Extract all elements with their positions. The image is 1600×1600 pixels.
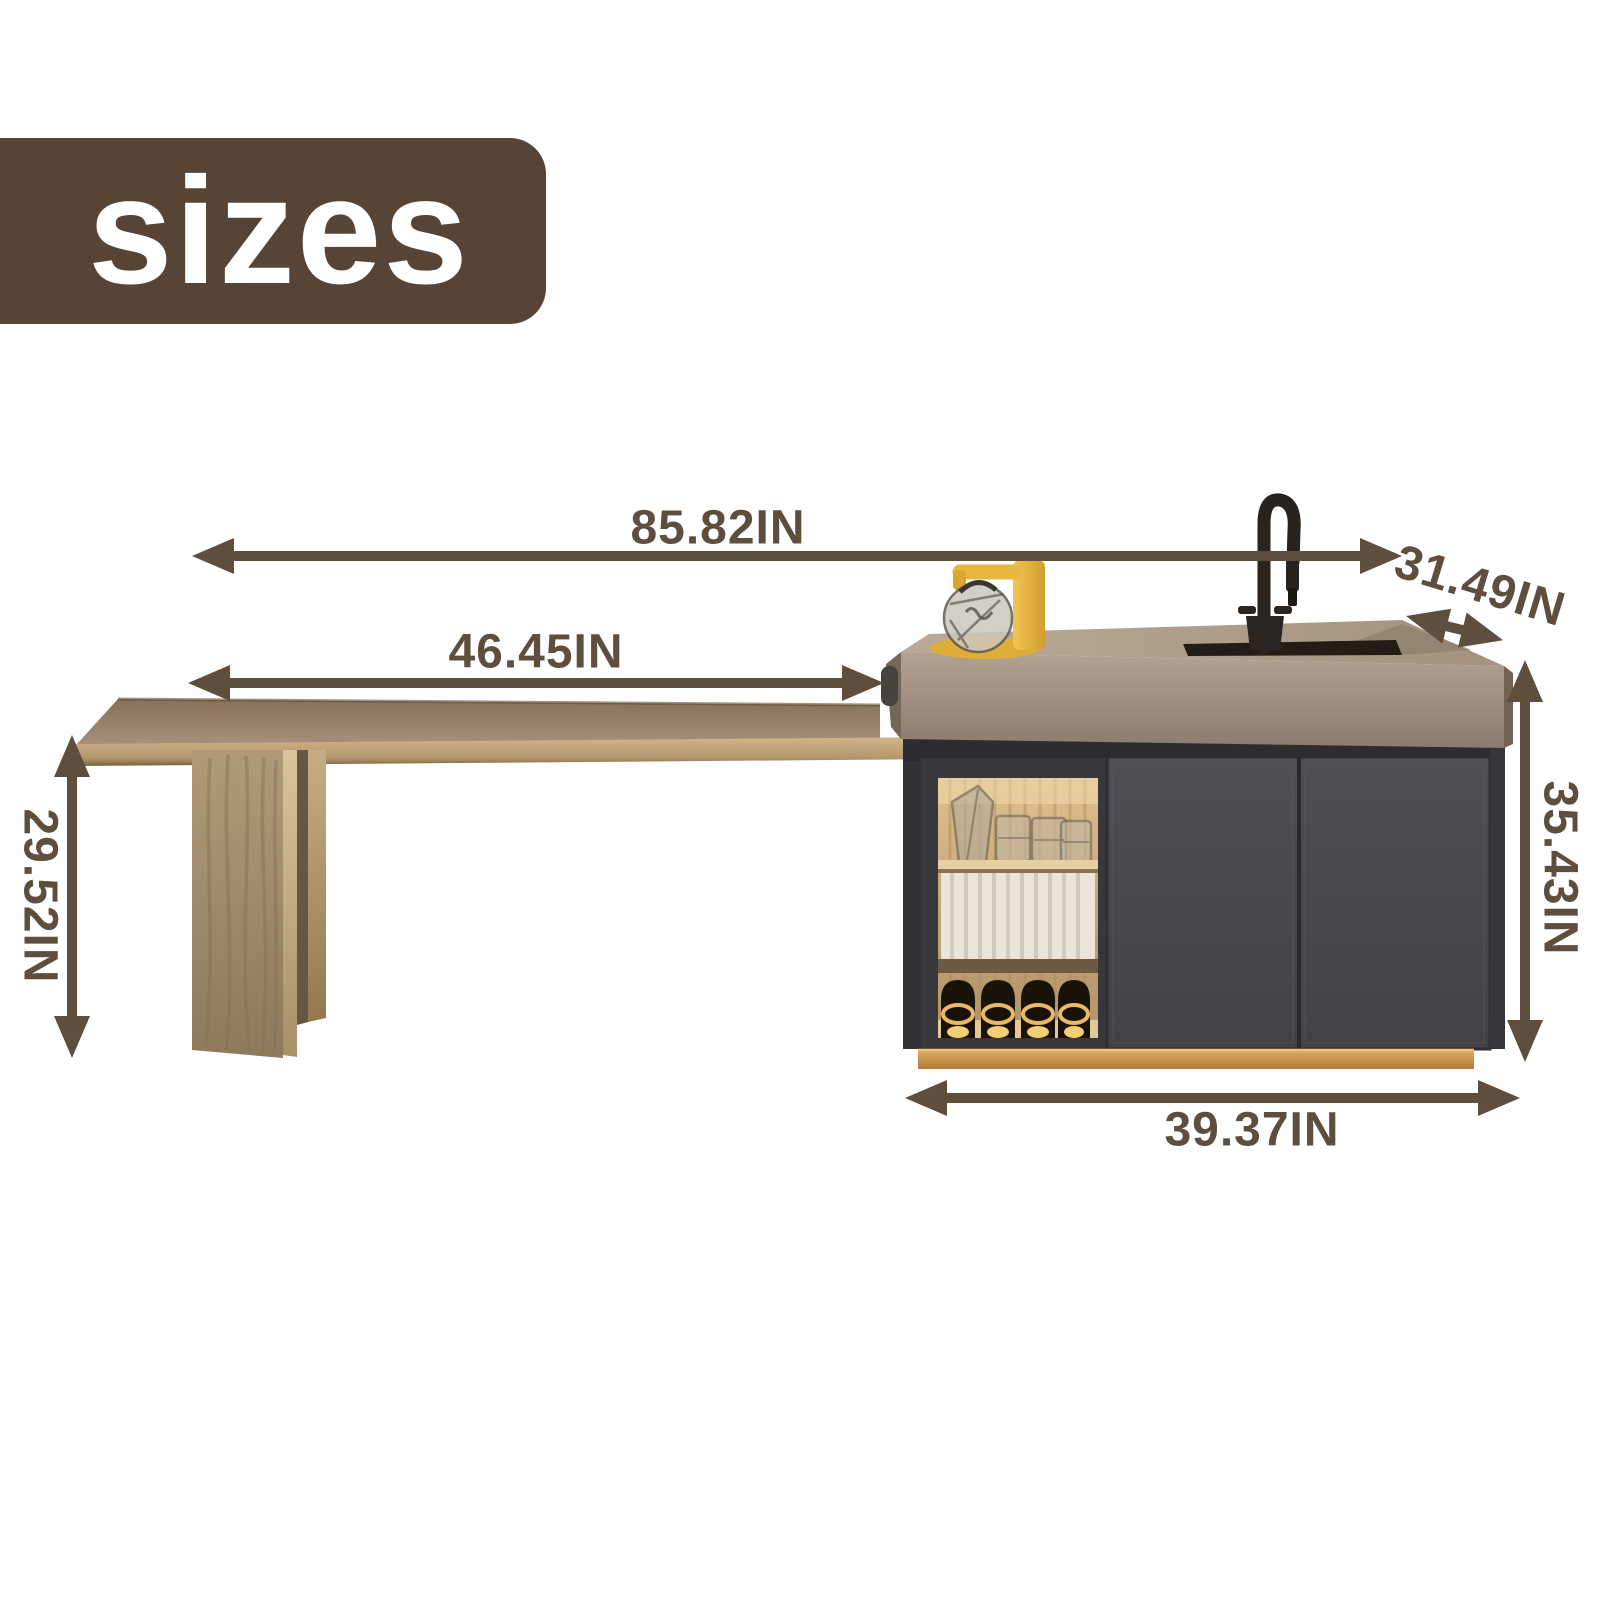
- table-leg-edge-strip: [283, 750, 297, 1057]
- teapot-decor: [944, 582, 1012, 652]
- gold-plinth: [918, 1049, 1474, 1069]
- faucet-base: [1246, 616, 1284, 650]
- wine-bottle: [1058, 980, 1090, 1038]
- island-height-label: 35.43IN: [1533, 780, 1588, 955]
- wine-bottle: [981, 980, 1015, 1038]
- wine-bottle: [1021, 980, 1055, 1038]
- faucet-spout: [1286, 558, 1299, 592]
- counter-side-knob: [881, 666, 898, 706]
- sizes-badge: sizes: [0, 138, 546, 324]
- table-height-label: 29.52IN: [13, 808, 68, 983]
- size-diagram: sizes 85.82IN 46.45IN 31.49IN 29.52IN 35…: [0, 0, 1600, 1600]
- kitchen-island: [881, 620, 1513, 1069]
- niche-shelf: [938, 860, 1098, 869]
- sizes-badge-label: sizes: [88, 155, 470, 307]
- faucet-nozzle: [1288, 588, 1297, 606]
- niche-shelf-shadow: [938, 869, 1098, 873]
- table-leg-rear-panel: [308, 750, 326, 1022]
- table-leg-front-slab: [192, 750, 283, 1058]
- counter-front-face: [901, 652, 1504, 748]
- display-niche: [938, 778, 1098, 1038]
- island-width-label: 39.37IN: [1164, 1103, 1339, 1158]
- countertop-decor: [930, 560, 1045, 659]
- overall-width-label: 85.82IN: [630, 501, 805, 556]
- table-leg: [192, 750, 326, 1058]
- faucet-handle: [1274, 606, 1292, 614]
- table-length-label: 46.45IN: [448, 625, 623, 680]
- curtain-under-shadow: [938, 959, 1098, 973]
- wine-bottle: [941, 980, 975, 1038]
- dining-table-top-surface: [76, 699, 880, 745]
- cabinet-right-side: [1490, 748, 1505, 1049]
- faucet-handle: [1238, 606, 1256, 614]
- cabinet-doors: [1107, 757, 1490, 1049]
- cabinet-left-side: [903, 737, 921, 1049]
- counter-right-face: [1504, 666, 1513, 748]
- table-leg-groove: [297, 750, 308, 1025]
